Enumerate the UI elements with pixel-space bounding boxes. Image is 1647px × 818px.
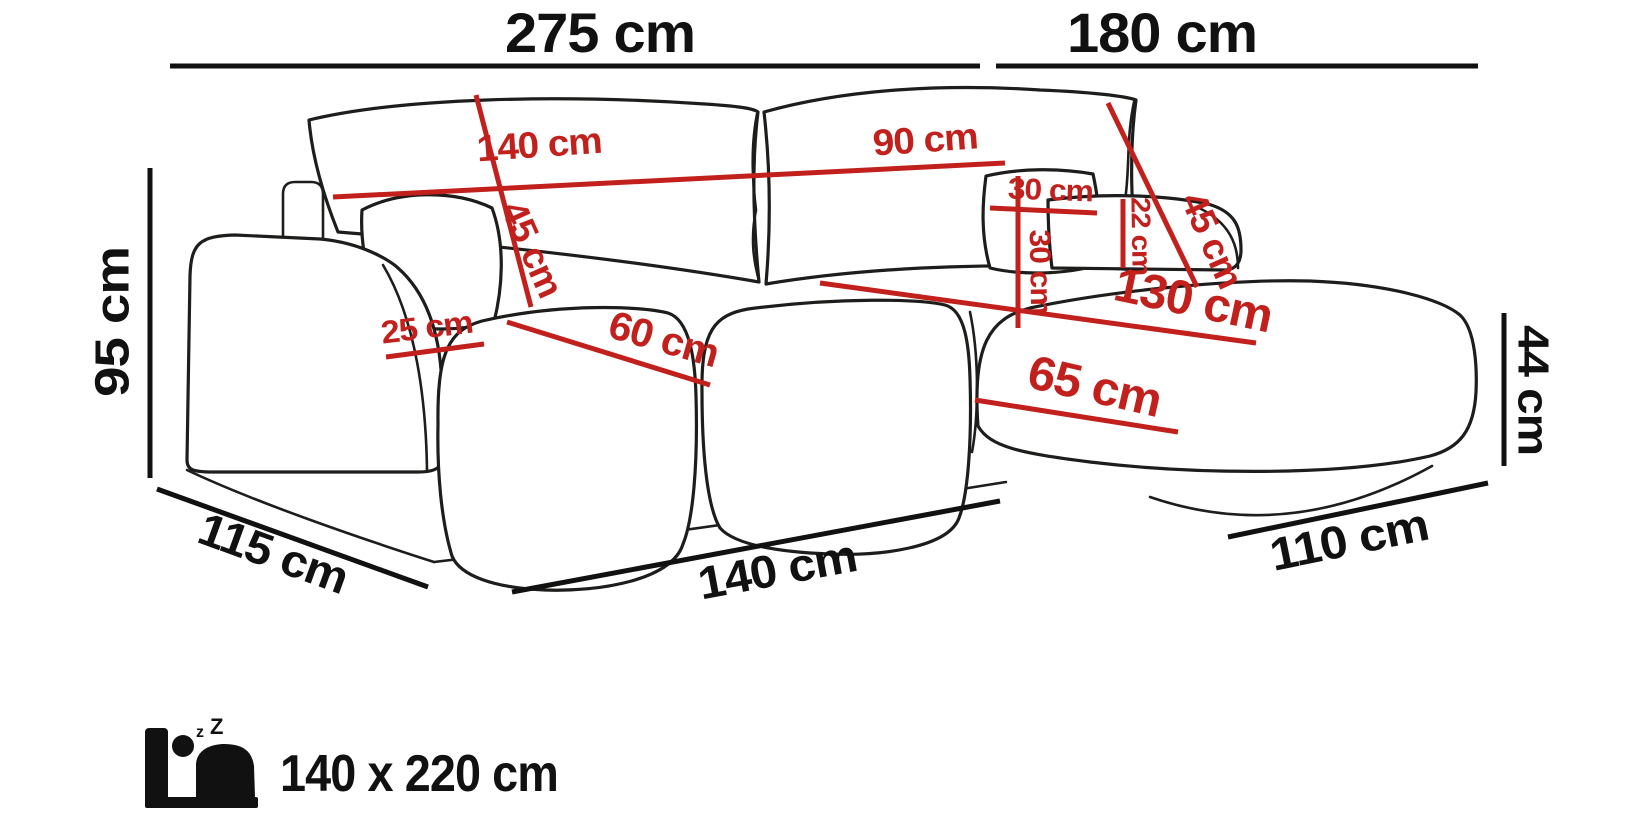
pillow-height-label: 30 cm (1023, 229, 1057, 315)
back-cushion-right-width-label: 90 cm (871, 115, 979, 163)
sofa-drawing (187, 88, 1476, 591)
sofa-dimension-diagram: 140 cm 90 cm 45 cm 45 cm 30 cm 30 cm 22 … (0, 0, 1647, 813)
chaise-width-label: 180 cm (1067, 1, 1257, 64)
seat-height-label: 44 cm (1509, 325, 1558, 455)
sleeping-size-label: 140 x 220 cm (280, 745, 558, 803)
back-width-label: 275 cm (505, 1, 695, 64)
bed-headboard (145, 728, 168, 808)
zzz-large: Z (210, 714, 223, 739)
sleeper-head (172, 735, 194, 757)
zzz-small: z (196, 724, 204, 741)
bed-base (145, 797, 258, 808)
side-depth-label: 115 cm (192, 502, 355, 604)
sleeping-function: z Z 140 x 220 cm (145, 714, 558, 808)
sleeper-blanket (196, 744, 255, 797)
height-label: 95 cm (87, 247, 140, 397)
diagram-canvas: 140 cm 90 cm 45 cm 45 cm 30 cm 30 cm 22 … (0, 0, 1647, 813)
bed-sleep-icon: z Z (145, 714, 258, 808)
